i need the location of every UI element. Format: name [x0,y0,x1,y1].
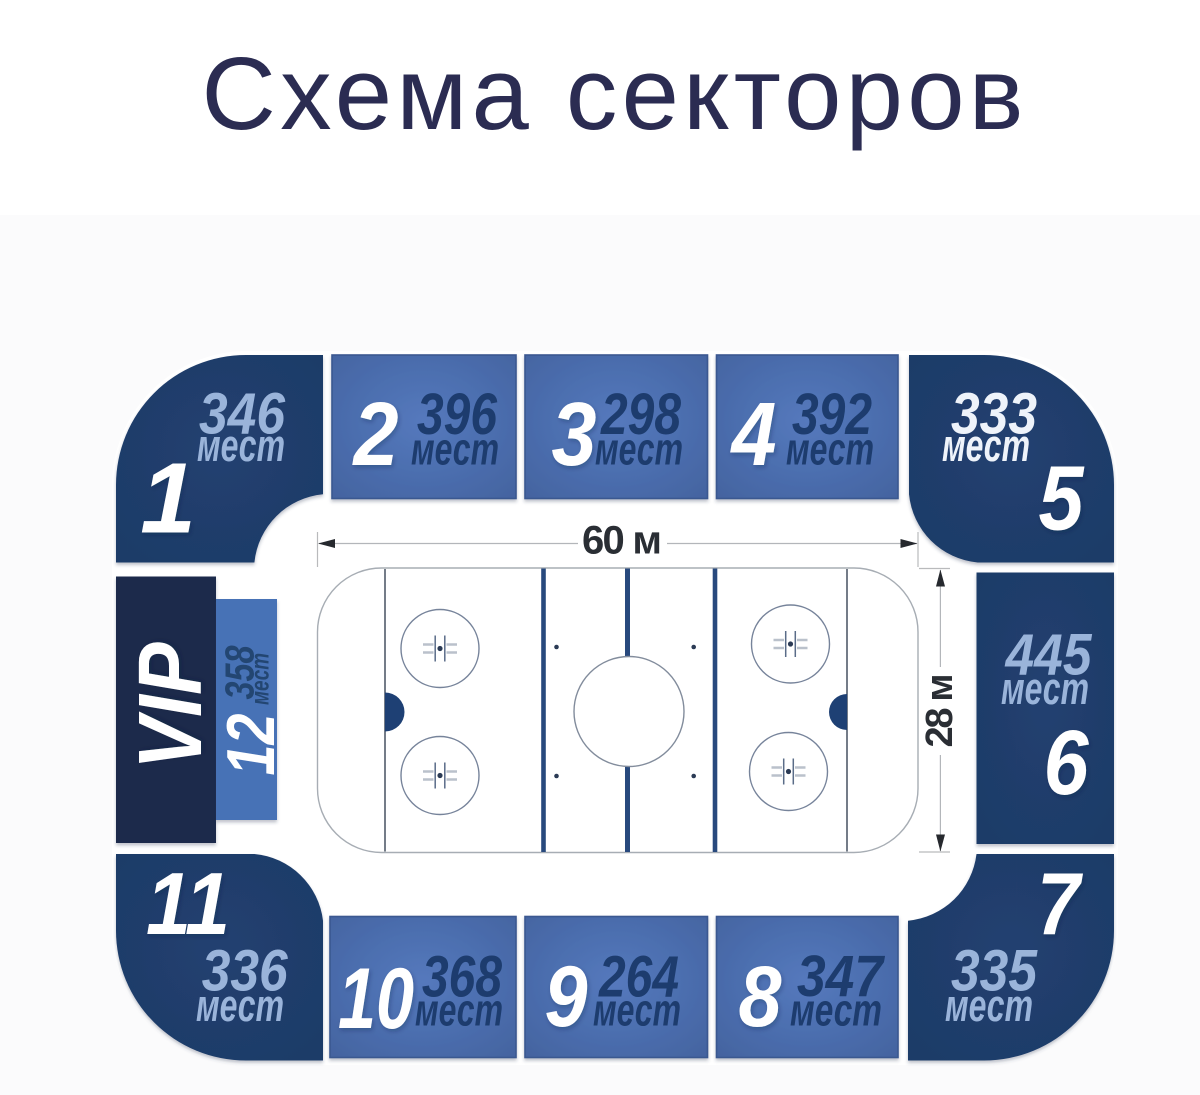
svg-text:VIP: VIP [121,642,221,770]
svg-text:мест: мест [1001,663,1089,714]
svg-text:мест: мест [786,424,874,475]
svg-text:мест: мест [945,980,1033,1031]
svg-text:мест: мест [411,424,499,475]
svg-text:мест: мест [595,424,683,475]
svg-text:мест: мест [196,980,284,1031]
svg-text:60 м: 60 м [582,519,662,563]
svg-text:мест: мест [415,985,503,1036]
svg-text:мест: мест [790,985,882,1036]
svg-text:мест: мест [245,653,275,705]
svg-text:5: 5 [1039,448,1086,550]
svg-text:7: 7 [1037,855,1084,954]
svg-text:6: 6 [1044,712,1090,814]
svg-text:9: 9 [545,949,588,1045]
svg-text:1: 1 [140,443,196,555]
svg-text:3: 3 [552,385,597,485]
svg-text:мест: мест [593,985,681,1036]
svg-text:мест: мест [942,420,1030,471]
svg-text:12: 12 [213,713,289,775]
svg-text:мест: мест [197,420,285,471]
svg-text:4: 4 [730,385,777,485]
svg-text:10: 10 [338,951,414,1047]
svg-text:2: 2 [352,385,399,485]
svg-text:8: 8 [739,949,782,1045]
svg-text:28 м: 28 м [919,674,961,748]
